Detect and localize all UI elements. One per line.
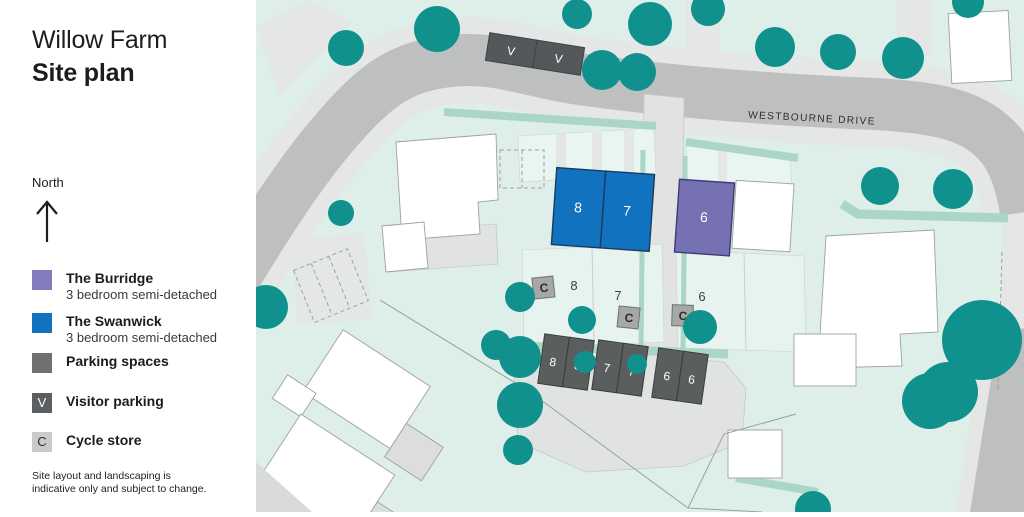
plot-7-number: 7 (622, 202, 631, 219)
tree (627, 354, 647, 374)
cycle-store: C (617, 306, 640, 329)
legend-name: The Burridge (66, 270, 217, 287)
tree (902, 373, 958, 429)
garden-label-7: 7 (614, 288, 621, 303)
tree (628, 2, 672, 46)
tree (414, 6, 460, 52)
legend-name: Cycle store (66, 432, 141, 449)
tree (861, 167, 899, 205)
tree (499, 336, 541, 378)
burridge-home: 6 (674, 179, 734, 256)
legend-item-cycle: C Cycle store (32, 432, 141, 452)
tree (820, 34, 856, 70)
tree (882, 37, 924, 79)
legend-desc: 3 bedroom semi-detached (66, 287, 217, 303)
north-indicator: North (32, 175, 64, 244)
legend-item-parking: Parking spaces (32, 353, 169, 373)
legend-item-burridge: The Burridge 3 bedroom semi-detached (32, 270, 217, 303)
project-name: Willow Farm (32, 24, 167, 57)
plot-8-number: 8 (574, 199, 583, 216)
cycle-store: C (532, 276, 555, 299)
garden-path (624, 129, 634, 173)
disclaimer-text: Site layout and landscaping is indicativ… (32, 470, 210, 496)
existing-house (732, 180, 794, 251)
parking-pair-6: 6 6 (652, 348, 708, 404)
tree (568, 306, 596, 334)
page-title: Willow Farm Site plan (32, 24, 167, 90)
legend-desc: 3 bedroom semi-detached (66, 330, 217, 346)
visitor-parking-swatch: V (32, 393, 52, 413)
legend-name: The Swanwick (66, 313, 217, 330)
cycle-store-letter: C (624, 311, 634, 326)
existing-house (948, 10, 1012, 83)
legend-item-swanwick: The Swanwick 3 bedroom semi-detached (32, 313, 217, 346)
legend-name: Visitor parking (66, 393, 164, 410)
existing-house (382, 222, 428, 272)
cycle-store-letter: C (539, 281, 549, 296)
site-plan-canvas: 8 7 6 8 7 6 C C C 8 8 (256, 0, 1024, 512)
tree (582, 50, 622, 90)
tree (683, 310, 717, 344)
site-plan-map: 8 7 6 8 7 6 C C C 8 8 (256, 0, 1024, 512)
tree (328, 30, 364, 66)
tree (497, 382, 543, 428)
existing-house (794, 334, 856, 386)
tree (618, 53, 656, 91)
sidebar: Willow Farm Site plan North The Burridge… (0, 0, 256, 512)
parking-swatch (32, 353, 52, 373)
cycle-store-swatch: C (32, 432, 52, 452)
tree (505, 282, 535, 312)
burridge-swatch (32, 270, 52, 290)
north-arrow-icon (32, 196, 62, 244)
tree (503, 435, 533, 465)
north-label: North (32, 175, 64, 190)
garden-path (592, 131, 602, 175)
legend-item-visitor: V Visitor parking (32, 393, 164, 413)
tree (933, 169, 973, 209)
plot-6-number: 6 (700, 209, 709, 226)
legend-name: Parking spaces (66, 353, 169, 370)
existing-house (728, 430, 782, 478)
swanwick-swatch (32, 313, 52, 333)
tree (562, 0, 592, 29)
tree (755, 27, 795, 67)
tree (574, 351, 596, 373)
garden-label-8: 8 (570, 278, 577, 293)
swanwick-pair: 8 7 (551, 168, 654, 252)
garden-label-6: 6 (698, 289, 705, 304)
page-subtitle: Site plan (32, 57, 167, 90)
tree (328, 200, 354, 226)
